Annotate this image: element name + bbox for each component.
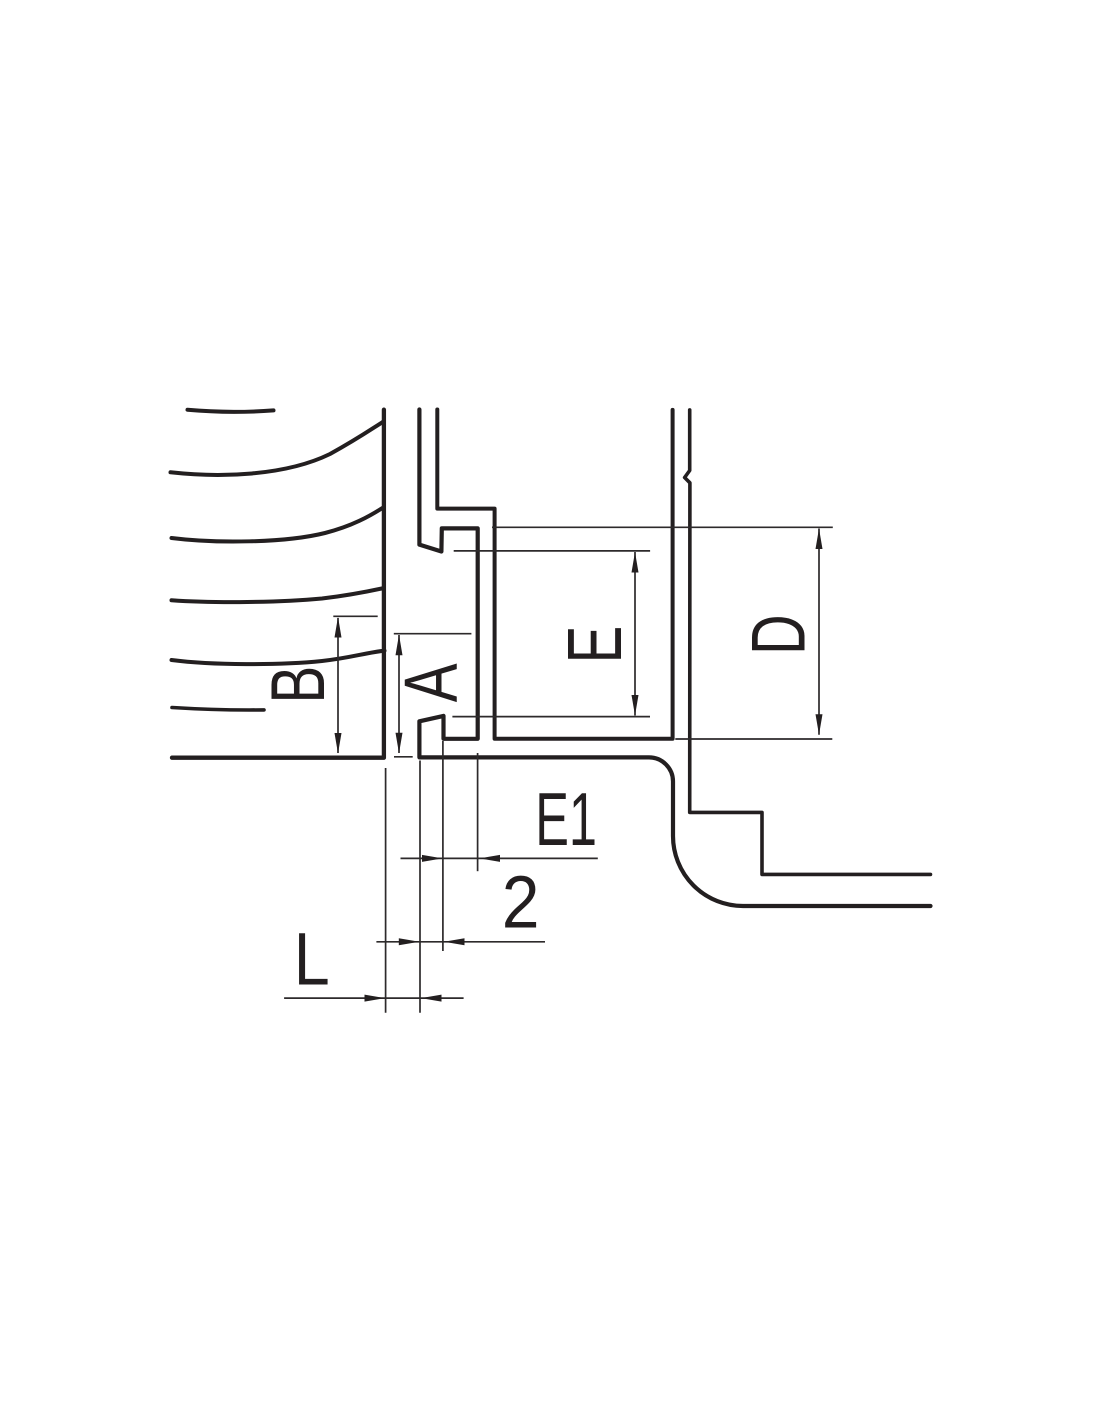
svg-text:D: D [737,614,821,654]
svg-text:E: E [553,626,639,664]
svg-text:A: A [389,663,473,702]
svg-text:B: B [256,666,341,704]
svg-text:L: L [294,917,330,1000]
svg-text:E1: E1 [535,777,597,862]
svg-text:2: 2 [502,862,540,944]
